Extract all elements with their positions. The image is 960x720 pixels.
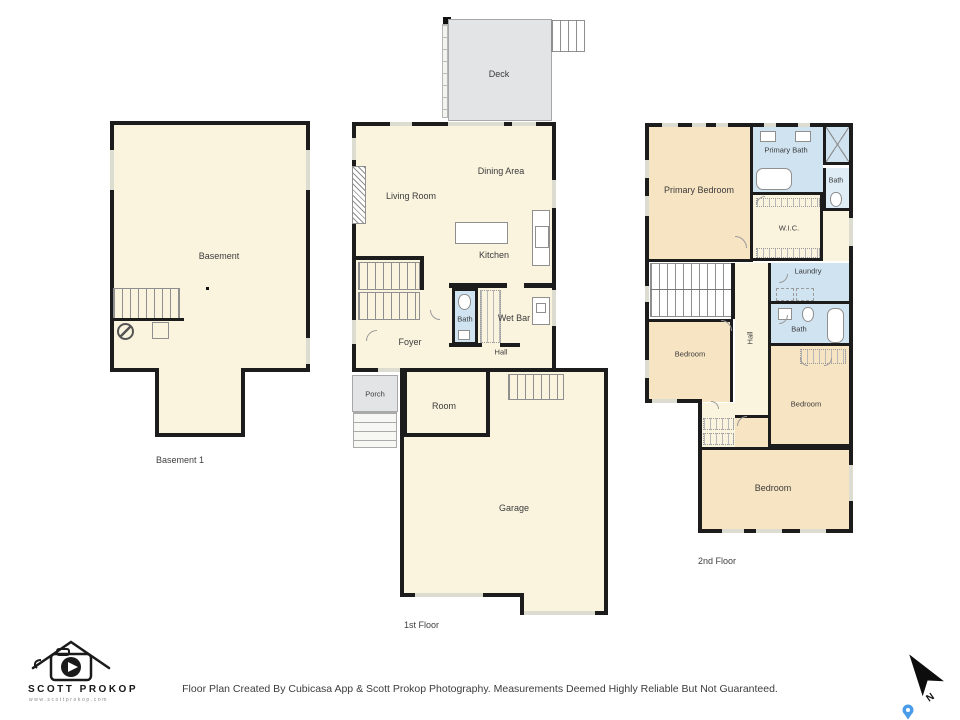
label-hall-second: Hall — [746, 332, 755, 345]
label-wic: W.I.C. — [779, 224, 799, 233]
support-post — [206, 287, 209, 290]
deck-stairs — [551, 20, 585, 52]
north-arrow-icon — [899, 650, 944, 696]
label-hall-first: Hall — [495, 348, 508, 357]
scott-prokop-logo — [27, 638, 115, 686]
bathtub-icon — [827, 308, 844, 343]
window — [512, 122, 536, 126]
wetbar-sink-icon — [536, 303, 546, 313]
main-staircase-upper — [358, 262, 420, 290]
label-bath-hall: Bath — [791, 325, 806, 334]
stair-rail — [650, 289, 732, 290]
deck-door-opening — [448, 122, 504, 126]
window — [552, 290, 556, 326]
window — [390, 122, 412, 126]
sink-icon — [795, 131, 811, 142]
toilet-icon — [830, 192, 842, 207]
sink-icon — [458, 330, 470, 340]
label-room: Room — [432, 401, 456, 411]
toilet-icon — [802, 307, 814, 322]
north-label: N — [924, 691, 936, 704]
kitchen-island — [455, 222, 508, 244]
wall — [500, 343, 520, 347]
label-bedroom-left: Bedroom — [675, 350, 705, 359]
washer-icon — [776, 288, 794, 301]
label-porch: Porch — [365, 390, 385, 399]
closet-shelf — [756, 248, 820, 258]
label-dining-area: Dining Area — [478, 166, 525, 176]
window — [352, 320, 356, 344]
label-deck: Deck — [489, 69, 510, 79]
main-staircase-lower — [358, 292, 420, 320]
sink-icon — [760, 131, 776, 142]
wall — [731, 263, 735, 319]
second-floor-staircase — [650, 263, 732, 317]
brand-website: www.scottprokop.com — [29, 697, 108, 703]
label-basement: Basement — [199, 251, 240, 261]
room-basement-extension — [155, 368, 245, 437]
window — [645, 286, 649, 302]
closet-shelf — [756, 198, 820, 207]
caption-first-floor: 1st Floor — [404, 620, 439, 630]
window — [306, 150, 310, 190]
caption-basement: Basement 1 — [156, 455, 204, 465]
label-bedroom-bottom: Bedroom — [755, 483, 792, 493]
window — [849, 218, 853, 246]
toilet-icon — [458, 294, 471, 310]
label-wet-bar: Wet Bar — [498, 313, 530, 323]
window — [764, 123, 776, 127]
porch-steps — [353, 412, 397, 448]
disclaimer-text: Floor Plan Created By Cubicasa App & Sco… — [0, 683, 960, 695]
window — [645, 196, 649, 216]
window — [652, 399, 677, 403]
garage-stairs — [508, 374, 564, 400]
caption-second-floor: 2nd Floor — [698, 556, 736, 566]
wall — [524, 283, 552, 288]
garage-door-opening — [415, 593, 483, 597]
label-primary-bath: Primary Bath — [764, 146, 807, 155]
utility-meter-icon — [117, 323, 134, 340]
compass: N — [895, 650, 955, 720]
closet-shelf — [703, 418, 734, 430]
fireplace — [352, 166, 366, 224]
window — [662, 123, 678, 127]
window — [306, 338, 310, 364]
label-kitchen: Kitchen — [479, 250, 509, 260]
shower-icon — [823, 127, 849, 165]
window — [716, 123, 728, 127]
window — [552, 180, 556, 208]
dryer-icon — [796, 288, 814, 301]
window — [722, 529, 744, 533]
label-bath-upper: Bath — [829, 178, 843, 185]
location-pin-icon — [903, 705, 914, 720]
room-bedroom-left — [649, 319, 733, 402]
landing-strip — [823, 211, 849, 261]
basement-staircase — [113, 288, 180, 319]
label-garage: Garage — [499, 503, 529, 513]
window — [645, 360, 649, 378]
label-foyer: Foyer — [398, 337, 421, 347]
wall — [352, 256, 424, 260]
window — [849, 465, 853, 501]
label-living-room: Living Room — [386, 191, 436, 201]
wall — [698, 399, 702, 533]
label-laundry: Laundry — [794, 267, 821, 276]
window — [800, 529, 826, 533]
basement-stair-wall — [110, 318, 184, 321]
wall — [420, 256, 424, 290]
closet-shelf — [703, 433, 734, 445]
floor-plan-page: Basement Basement 1 Deck — [0, 0, 960, 720]
window — [352, 138, 356, 160]
stove-icon — [535, 226, 549, 248]
window — [110, 150, 114, 190]
label-primary-bedroom: Primary Bedroom — [664, 185, 734, 195]
window — [692, 123, 706, 127]
label-bedroom-right: Bedroom — [791, 400, 821, 409]
front-door-opening — [378, 368, 400, 372]
window — [756, 529, 782, 533]
window — [798, 123, 810, 127]
window — [645, 160, 649, 178]
utility-box-icon — [152, 322, 169, 339]
label-bath-first: Bath — [457, 315, 472, 324]
room-basement — [110, 121, 310, 372]
bathtub-icon — [756, 168, 792, 190]
garage-door-opening — [524, 611, 595, 615]
